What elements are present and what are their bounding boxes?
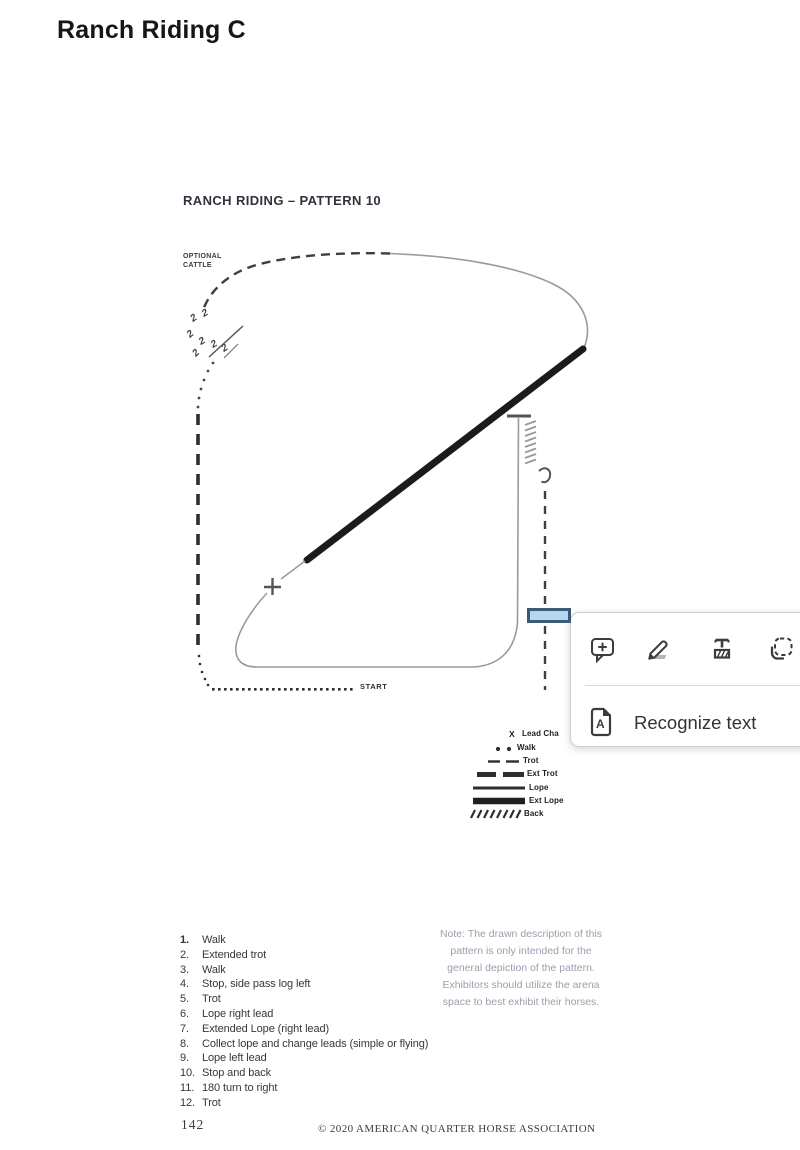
scanned-pattern-document: RANCH RIDING – PATTERN 10 OPTIONAL CATTL… <box>0 0 800 1150</box>
recognize-text-menu-item[interactable]: A Recognize text <box>571 686 800 746</box>
walk-dots-corner <box>198 655 210 687</box>
legend-label-lead-change: Lead Cha <box>522 729 559 738</box>
svg-text:2: 2 <box>188 312 200 325</box>
recognize-icon-letter: A <box>596 717 605 731</box>
walk-dots-bottom <box>212 688 353 691</box>
instruction-text: Lope left lead <box>202 1051 267 1066</box>
instruction-number: 6. <box>180 1007 202 1022</box>
legend-lead-change-x: X <box>509 729 515 739</box>
instruction-text: Trot <box>202 1096 221 1111</box>
instruction-item: 8. Collect lope and change leads (simple… <box>180 1037 490 1052</box>
instruction-text: 180 turn to right <box>202 1081 277 1096</box>
legend-label-ext-trot: Ext Trot <box>527 769 558 778</box>
instruction-text: Walk <box>202 933 226 948</box>
trot-top-curve <box>202 253 390 313</box>
start-label: START <box>360 682 387 691</box>
instruction-number: 3. <box>180 963 202 978</box>
recognize-text-icon: A <box>587 706 615 741</box>
pencil-icon <box>643 653 673 668</box>
instruction-item: 10. Stop and back <box>180 1066 490 1081</box>
instruction-number: 2. <box>180 948 202 963</box>
lope-connector <box>281 561 305 579</box>
instruction-number: 5. <box>180 992 202 1007</box>
legend-label-trot: Trot <box>523 756 539 765</box>
lope-top-arc <box>390 254 587 349</box>
highlight-text-button[interactable] <box>707 635 737 665</box>
svg-text:2: 2 <box>199 307 211 320</box>
instruction-text: Walk <box>202 963 226 978</box>
cattle-symbols: 2 2 2 2 2 2 2 <box>184 307 231 360</box>
legend-label-back: Back <box>524 809 544 818</box>
legend-label-lope: Lope <box>529 783 549 792</box>
turn-hook <box>539 468 550 482</box>
page-number: 142 <box>181 1117 204 1133</box>
area-select-icon <box>767 651 797 666</box>
annotation-popup: A Recognize text <box>570 612 800 747</box>
instruction-number: 4. <box>180 977 202 992</box>
back-hatch-marks <box>525 421 536 464</box>
area-select-button[interactable] <box>767 635 797 665</box>
svg-text:2: 2 <box>190 347 203 360</box>
instruction-item: 9. Lope left lead <box>180 1051 490 1066</box>
recognize-text-label: Recognize text <box>634 712 756 734</box>
ext-lope-diagonal <box>307 349 583 560</box>
annotation-toolbar <box>571 613 800 685</box>
instruction-number: 12. <box>180 1096 202 1111</box>
pencil-highlighter-button[interactable] <box>643 635 673 665</box>
instruction-number: 10. <box>180 1066 202 1081</box>
instruction-text: Stop, side pass log left <box>202 977 310 992</box>
instruction-number: 7. <box>180 1022 202 1037</box>
legend-label-ext-lope: Ext Lope <box>529 796 564 805</box>
instruction-text: Stop and back <box>202 1066 271 1081</box>
copyright-text: © 2020 AMERICAN QUARTER HORSE ASSOCIATIO… <box>318 1123 595 1135</box>
instruction-item: 12. Trot <box>180 1096 490 1111</box>
pattern-note: Note: The drawn description of this patt… <box>433 926 609 1011</box>
instruction-number: 8. <box>180 1037 202 1052</box>
instruction-text: Lope right lead <box>202 1007 273 1022</box>
instruction-number: 1. <box>180 933 202 948</box>
instruction-item: 7. Extended Lope (right lead) <box>180 1022 490 1037</box>
svg-text:2: 2 <box>196 335 208 348</box>
instruction-text: Collect lope and change leads (simple or… <box>202 1037 428 1052</box>
instruction-number: 11. <box>180 1081 202 1096</box>
instruction-item: 11. 180 turn to right <box>180 1081 490 1096</box>
selection-highlight[interactable] <box>527 608 571 623</box>
instruction-text: Extended trot <box>202 948 266 963</box>
legend-label-walk: Walk <box>517 743 536 752</box>
pdf-viewer-page: Ranch Riding C RANCH RIDING – PATTERN 10… <box>0 0 800 1150</box>
add-comment-button[interactable] <box>588 635 618 665</box>
instruction-text: Extended Lope (right lead) <box>202 1022 329 1037</box>
lope-bottom-path <box>236 418 519 667</box>
add-comment-icon <box>589 653 617 668</box>
instruction-text: Trot <box>202 992 221 1007</box>
instruction-number: 9. <box>180 1051 202 1066</box>
lead-change-marker <box>264 578 281 595</box>
walk-dots-left <box>197 362 215 409</box>
svg-text:2: 2 <box>184 328 196 341</box>
highlight-text-icon <box>708 651 736 666</box>
